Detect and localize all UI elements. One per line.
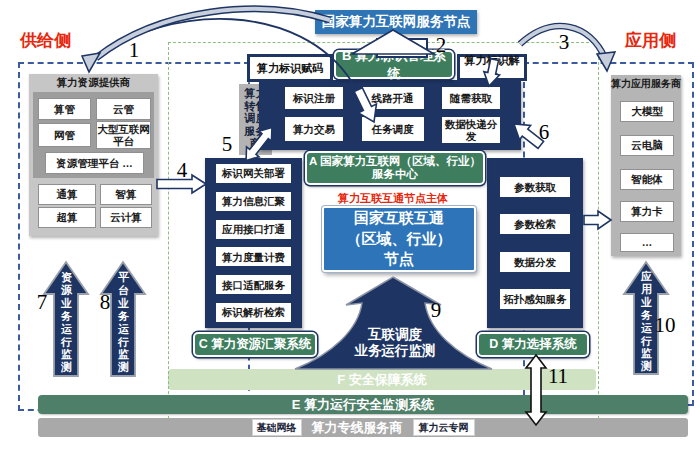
d-item: 拓扑感知服务: [500, 289, 570, 309]
d-system-label-text: D 算力选择系统: [489, 336, 577, 353]
node-line1: 国家互联互通: [354, 208, 444, 229]
mgmt-item: 算管: [38, 98, 91, 120]
page-title: 国家算力互联网服务节点: [315, 10, 477, 34]
step-8: 8: [92, 290, 118, 315]
app-item: 大模型: [620, 101, 674, 122]
d-item: 参数检索: [500, 214, 570, 234]
identifier-store-box: 标识库: [376, 38, 428, 58]
step-9: 9: [423, 298, 449, 323]
supply-provider-panel: 算力资源提供商 算管 云管 网管 大型互联网平台 资源管理平台 … 通算 智算 …: [29, 74, 158, 236]
a-item: 线路开通: [362, 87, 424, 109]
app-provider-title-text: 算力应用服务商: [611, 77, 681, 91]
app-item: 云电脑: [620, 135, 674, 156]
line-provider-label: 算力专线服务商: [312, 419, 403, 437]
step-4: 4: [169, 158, 195, 183]
page-title-text: 国家算力互联网服务节点: [322, 13, 471, 31]
step-5: 5: [214, 132, 240, 157]
step-3: 3: [551, 30, 577, 55]
d-item: 数据分发: [500, 252, 570, 272]
supply-provider-title: 算力资源提供商: [29, 74, 158, 92]
c-item: 标识解析检索: [216, 303, 291, 322]
demand-side-label: 应用侧: [625, 29, 676, 52]
identifier-resolve-label: 算力标识解析: [460, 53, 524, 83]
monitor-platform-label: 平台业务运行监测: [117, 271, 130, 374]
step-11: 11: [545, 364, 571, 389]
cloud-network-chip: 算力云专网: [413, 419, 475, 436]
app-provider-title: 算力应用服务商: [611, 75, 681, 93]
c-item: 算力度量计费: [216, 247, 291, 266]
supply-side-label: 供给侧: [20, 29, 71, 52]
a-item: 随需获取: [442, 87, 500, 109]
resource-item: 通算: [38, 184, 96, 205]
c-item: 接口适配服务: [216, 275, 291, 294]
identifier-assign-label: 算力标识赋码: [257, 61, 323, 76]
resource-item: 智算: [100, 184, 152, 205]
a-item: 标识注册: [285, 87, 343, 109]
base-network-chip: 基础网络: [252, 419, 302, 436]
interconnect-line1: 互联调度: [325, 327, 465, 343]
d-system-container: 参数获取 参数检索 数据分发 拓扑感知服务: [487, 158, 583, 328]
app-provider-panel: 算力应用服务商 大模型 云电脑 智能体 算力卡 …: [611, 75, 681, 256]
identifier-store-label: 标识库: [386, 41, 419, 56]
node-owner-note: 算力互联互通节点主体: [305, 191, 481, 206]
a-system-label-line2: 服务中心: [372, 168, 418, 182]
resource-item: 超算: [38, 207, 96, 228]
step-7: 7: [29, 290, 55, 315]
c-item: 标识网关部署: [216, 164, 291, 183]
resource-item: 云计算: [100, 207, 152, 228]
supply-provider-title-text: 算力资源提供商: [57, 76, 131, 90]
cloud-network-label: 算力云专网: [419, 421, 469, 435]
a-item: 算力交易: [285, 117, 343, 141]
mgmt-item: 大型互联网平台: [96, 121, 151, 149]
a-system-container: 标识注册 线路开通 随需获取 算力交易 任务调度 数据快递分发: [259, 80, 521, 150]
interconnect-line2: 业务运行监测: [325, 343, 465, 359]
mgmt-item: 云管: [96, 98, 151, 120]
d-system-label: D 算力选择系统: [477, 332, 589, 357]
c-item: 应用接口打通: [216, 220, 291, 239]
monitor-resource-label: 资源业务运行监测: [60, 271, 73, 374]
identifier-resolve-box: 算力标识解析: [457, 54, 527, 81]
a-system-label: A 国家算力互联网（区域、行业） 服务中心: [305, 151, 485, 185]
base-network-label: 基础网络: [257, 421, 297, 435]
c-system-label: C 算力资源汇聚系统: [193, 332, 317, 357]
interconnect-node-box: 国家互联互通 （区域、行业） 节点: [322, 206, 476, 272]
step-6: 6: [531, 120, 557, 145]
step-2: 2: [428, 33, 454, 58]
node-line2: （区域、行业）: [347, 229, 452, 250]
security-monitor-label: E 算力运行安全监测系统: [292, 396, 434, 414]
app-item: …: [620, 233, 674, 252]
interconnect-monitor-label: 互联调度 业务运行监测: [325, 327, 465, 359]
c-item: 算力信息汇聚: [216, 192, 291, 211]
node-line3: 节点: [384, 249, 414, 270]
app-item: 算力卡: [620, 201, 674, 222]
a-system-label-line1: A 国家算力互联网（区域、行业）: [309, 155, 481, 169]
a-item: 数据快递分发: [442, 117, 500, 143]
d-item: 参数获取: [500, 177, 570, 197]
c-system-label-text: C 算力资源汇聚系统: [199, 336, 312, 353]
identifier-assign-box: 算力标识赋码: [247, 54, 333, 82]
step-1: 1: [121, 38, 147, 63]
a-item: 任务调度: [362, 117, 424, 141]
app-item: 智能体: [620, 169, 674, 190]
mgmt-platform: 资源管理平台 …: [45, 152, 144, 174]
c-system-container: 标识网关部署 算力信息汇聚 应用接口打通 算力度量计费 接口适配服务 标识解析检…: [205, 158, 302, 328]
security-monitor-bar: E 算力运行安全监测系统: [38, 395, 688, 414]
network-bar: 基础网络 算力专线服务商 算力云专网: [38, 418, 688, 437]
mgmt-item: 网管: [38, 123, 91, 147]
supply-mgmt-subpanel: 算管 云管 网管 大型互联网平台 资源管理平台 …: [33, 92, 154, 178]
step-10: 10: [652, 313, 678, 338]
diagram-canvas: F 安全保障系统 E 算力运行安全监测系统 基础网络 算力专线服务商 算力云专网…: [0, 0, 700, 452]
